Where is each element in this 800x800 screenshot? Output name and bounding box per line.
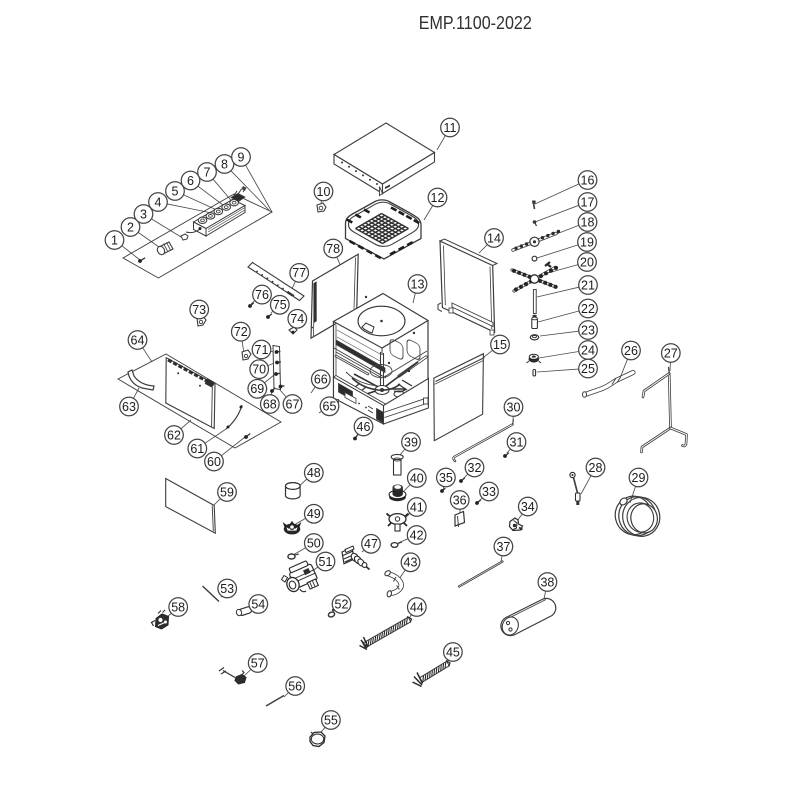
svg-text:9: 9 (238, 150, 245, 164)
svg-text:3: 3 (140, 207, 147, 221)
svg-text:75: 75 (273, 298, 287, 312)
svg-text:73: 73 (192, 303, 206, 317)
svg-text:10: 10 (317, 185, 331, 199)
svg-text:53: 53 (220, 582, 234, 596)
svg-text:69: 69 (250, 382, 264, 396)
svg-text:16: 16 (581, 173, 595, 187)
svg-text:29: 29 (632, 471, 646, 485)
svg-text:2: 2 (127, 220, 134, 234)
svg-text:EMP.1100-2022: EMP.1100-2022 (419, 12, 532, 33)
svg-text:52: 52 (335, 597, 349, 611)
svg-text:13: 13 (411, 277, 425, 291)
svg-text:41: 41 (410, 500, 424, 514)
svg-text:17: 17 (581, 195, 595, 209)
svg-text:7: 7 (204, 165, 211, 179)
svg-text:67: 67 (286, 397, 300, 411)
svg-text:18: 18 (581, 215, 595, 229)
svg-text:37: 37 (496, 540, 510, 554)
svg-text:42: 42 (410, 528, 424, 542)
svg-text:8: 8 (221, 157, 228, 171)
svg-text:74: 74 (290, 312, 304, 326)
svg-text:63: 63 (122, 400, 136, 414)
svg-text:72: 72 (234, 325, 248, 339)
svg-text:56: 56 (288, 679, 302, 693)
svg-text:39: 39 (404, 435, 418, 449)
svg-text:25: 25 (581, 362, 595, 376)
svg-text:20: 20 (580, 255, 594, 269)
svg-text:24: 24 (581, 343, 595, 357)
svg-text:59: 59 (220, 485, 234, 499)
svg-text:31: 31 (510, 435, 524, 449)
svg-text:32: 32 (468, 461, 482, 475)
svg-text:34: 34 (521, 500, 535, 514)
svg-text:22: 22 (581, 302, 595, 316)
svg-text:76: 76 (255, 288, 269, 302)
svg-text:40: 40 (410, 471, 424, 485)
svg-text:44: 44 (410, 600, 424, 614)
svg-text:78: 78 (326, 242, 340, 256)
svg-text:62: 62 (167, 428, 181, 442)
svg-text:38: 38 (540, 575, 554, 589)
svg-text:71: 71 (255, 343, 269, 357)
svg-text:5: 5 (172, 184, 179, 198)
svg-text:65: 65 (323, 400, 337, 414)
svg-text:28: 28 (589, 461, 603, 475)
svg-text:43: 43 (404, 556, 418, 570)
svg-text:4: 4 (155, 195, 162, 209)
svg-text:14: 14 (487, 231, 501, 245)
svg-text:68: 68 (263, 397, 277, 411)
svg-text:23: 23 (581, 323, 595, 337)
svg-text:15: 15 (493, 338, 507, 352)
svg-text:19: 19 (580, 235, 594, 249)
svg-text:45: 45 (446, 645, 460, 659)
svg-text:58: 58 (171, 600, 185, 614)
svg-text:30: 30 (507, 400, 521, 414)
svg-text:49: 49 (307, 507, 321, 521)
svg-text:27: 27 (664, 346, 678, 360)
svg-text:46: 46 (357, 420, 371, 434)
svg-text:64: 64 (131, 333, 145, 347)
svg-text:60: 60 (207, 455, 221, 469)
svg-text:26: 26 (624, 344, 638, 358)
svg-text:50: 50 (307, 536, 321, 550)
svg-text:36: 36 (453, 493, 467, 507)
svg-text:66: 66 (314, 373, 328, 387)
svg-text:51: 51 (319, 555, 333, 569)
svg-text:47: 47 (364, 537, 378, 551)
svg-text:12: 12 (431, 191, 445, 205)
svg-text:21: 21 (581, 278, 595, 292)
svg-text:11: 11 (444, 121, 457, 135)
svg-text:55: 55 (324, 713, 338, 727)
svg-text:57: 57 (251, 656, 265, 670)
svg-text:48: 48 (307, 466, 321, 480)
svg-text:1: 1 (111, 233, 118, 247)
svg-text:70: 70 (252, 363, 266, 377)
svg-text:6: 6 (187, 174, 194, 188)
svg-text:77: 77 (292, 266, 306, 280)
svg-text:33: 33 (482, 485, 496, 499)
svg-text:61: 61 (190, 442, 204, 456)
svg-text:54: 54 (251, 597, 265, 611)
svg-text:35: 35 (439, 471, 453, 485)
